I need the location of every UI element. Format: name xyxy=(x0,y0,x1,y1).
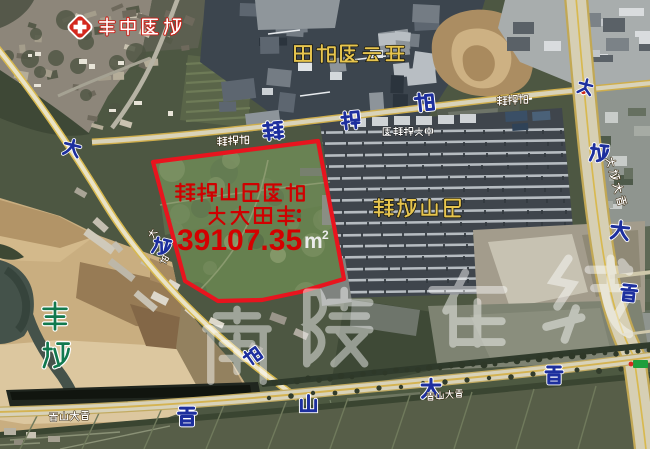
svg-text:m: m xyxy=(304,230,323,253)
svg-text:39107.35: 39107.35 xyxy=(177,224,302,257)
svg-text:2: 2 xyxy=(322,228,329,242)
